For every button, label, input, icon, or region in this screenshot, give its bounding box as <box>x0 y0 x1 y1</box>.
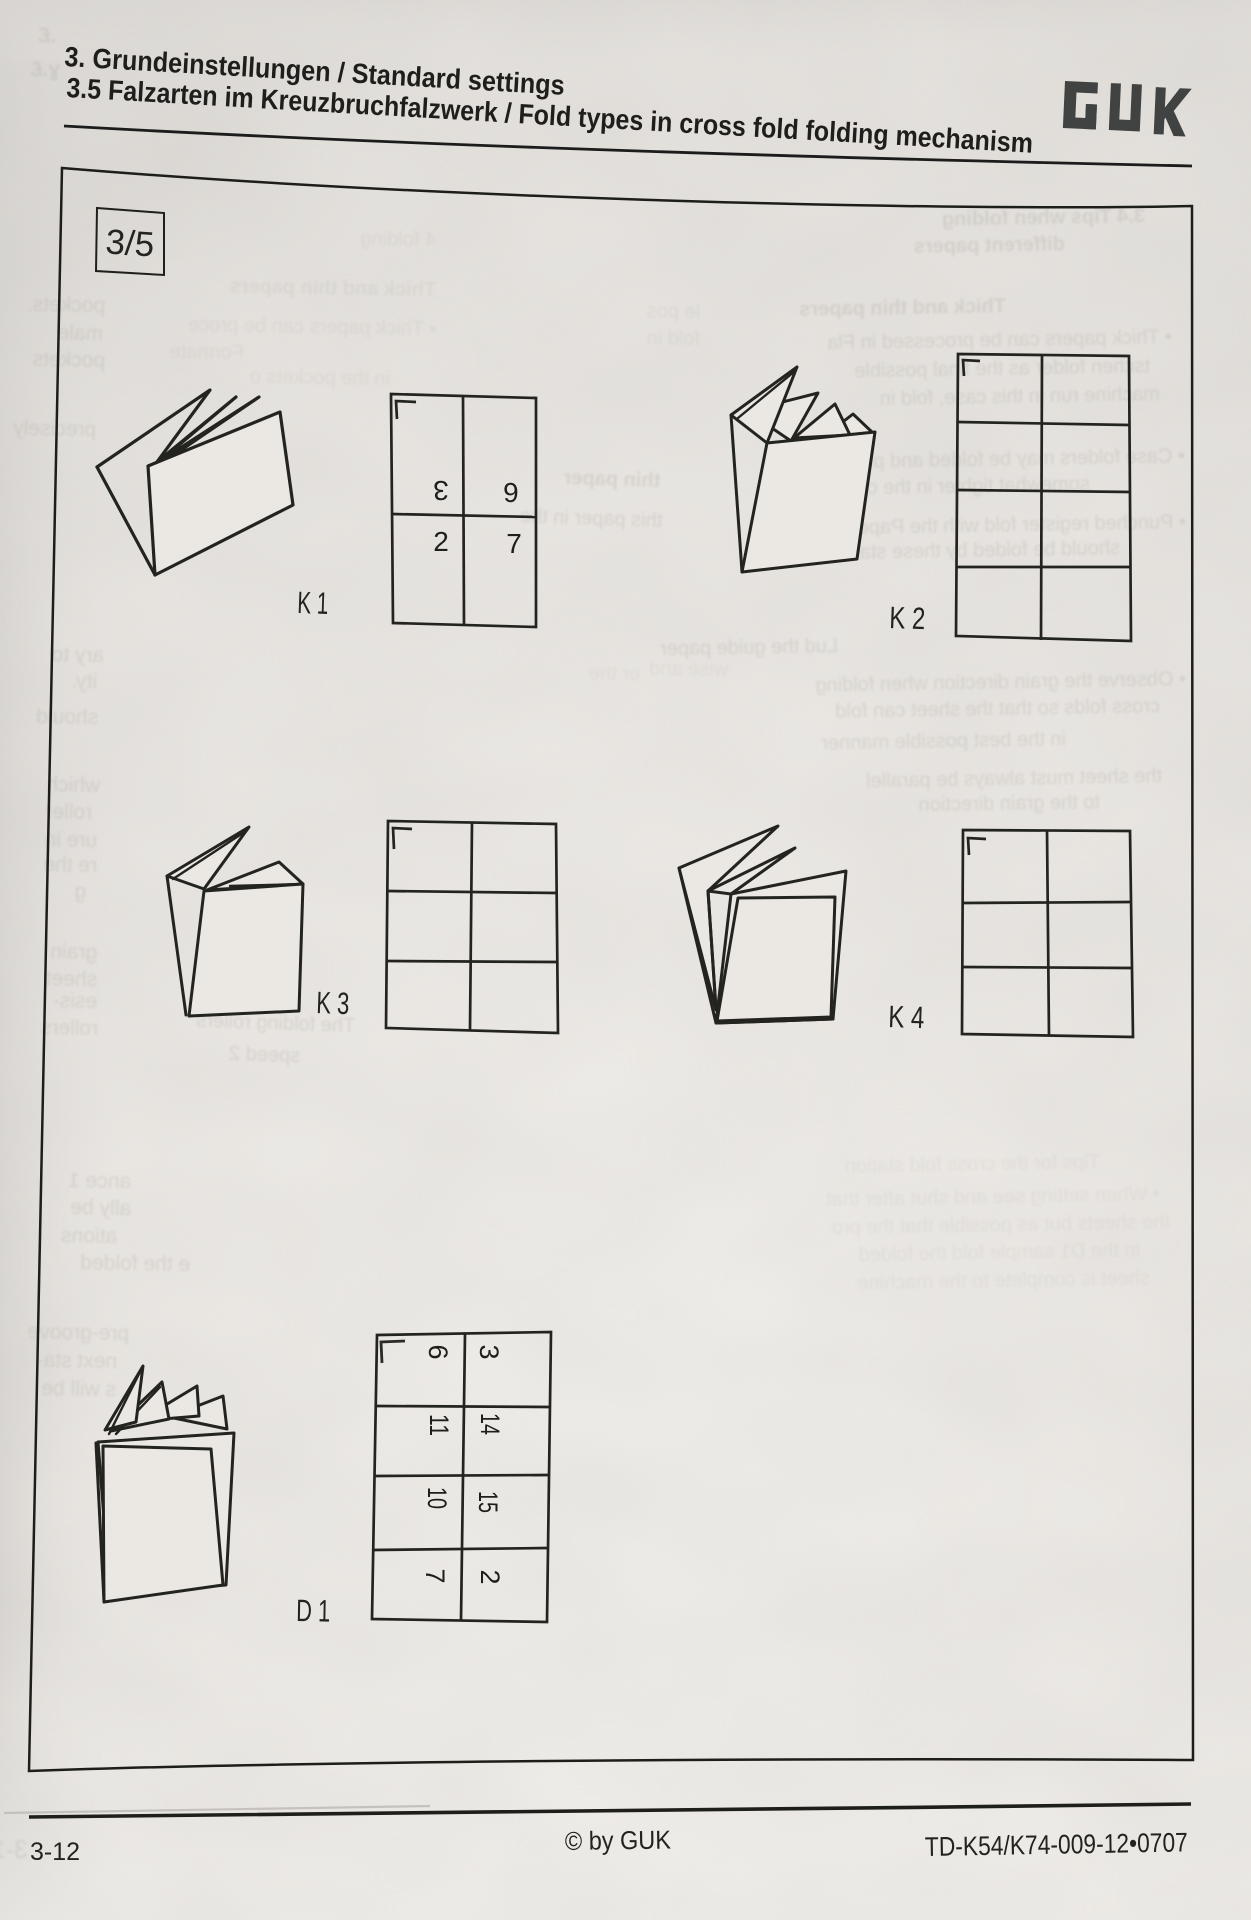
svg-text:pockets.: pockets. <box>27 293 106 317</box>
svg-text:6: 6 <box>423 1344 453 1359</box>
svg-text:g: g <box>74 880 86 903</box>
svg-text:D 1: D 1 <box>296 1593 331 1629</box>
svg-text:ally be: ally be <box>70 1196 131 1220</box>
svg-text:10: 10 <box>422 1487 452 1509</box>
svg-text:rollers: rollers <box>41 1016 99 1040</box>
svg-text:pockets: pockets <box>33 348 106 372</box>
svg-text:3.4 Tips when folding: 3.4 Tips when folding <box>942 205 1145 231</box>
svg-text:2: 2 <box>475 1569 505 1584</box>
svg-text:K 2: K 2 <box>889 600 926 636</box>
svg-text:7: 7 <box>506 528 522 559</box>
svg-text:© by GUK: © by GUK <box>565 1825 672 1856</box>
svg-text:11: 11 <box>424 1414 454 1436</box>
svg-text:ure in: ure in <box>44 828 97 852</box>
svg-text:roller: roller <box>45 800 92 824</box>
svg-text:re the: re the <box>43 853 97 877</box>
svg-text:in the best possible manner: in the best possible manner <box>821 728 1066 754</box>
svg-text:sheet: sheet <box>45 967 97 991</box>
svg-text:somewhat tighter in the case: somewhat tighter in the case <box>835 473 1090 499</box>
svg-text:Tips for the cross fold statio: Tips for the cross fold station <box>845 1151 1100 1177</box>
svg-text:thin paper: thin paper <box>563 467 661 492</box>
svg-text:K 1: K 1 <box>297 585 329 621</box>
svg-text:K 4: K 4 <box>888 999 925 1035</box>
svg-text:to the grain direction: to the grain direction <box>918 791 1100 816</box>
svg-text:ance 1: ance 1 <box>68 1169 131 1193</box>
svg-text:Thick and thin papers: Thick and thin papers <box>799 295 1006 321</box>
svg-text:ɣ.£: ɣ.£ <box>30 58 60 81</box>
svg-text:ary to: ary to <box>51 643 104 667</box>
svg-text:wise and: wise and <box>649 658 729 681</box>
svg-text:er the: er the <box>589 662 641 685</box>
svg-text:s will be: s will be <box>41 1377 116 1401</box>
svg-text:e the folded: e the folded <box>80 1251 190 1276</box>
svg-text:3/5: 3/5 <box>104 222 155 264</box>
svg-text:should: should <box>36 705 98 729</box>
svg-text:TD-K54/K74-009-12•0707: TD-K54/K74-009-12•0707 <box>925 1827 1188 1862</box>
svg-text:15: 15 <box>473 1491 503 1513</box>
svg-text:fold in: fold in <box>647 327 701 350</box>
svg-text:• Thick papers can be proce: • Thick papers can be proce <box>188 314 436 340</box>
svg-text:3-12: 3-12 <box>30 1838 80 1866</box>
svg-text:3-11: 3-11 <box>0 1836 28 1864</box>
svg-text:2: 2 <box>433 526 449 557</box>
svg-text:4 folding: 4 folding <box>360 228 436 251</box>
svg-text:next sta-: next sta- <box>36 1349 117 1373</box>
svg-text:3: 3 <box>474 1344 504 1359</box>
svg-text:precisely: precisely <box>13 417 97 441</box>
svg-text:male: male <box>57 321 103 345</box>
svg-text:.£: .£ <box>38 24 56 47</box>
svg-text:6: 6 <box>503 477 519 508</box>
svg-text:which: which <box>46 773 101 797</box>
svg-text:K 3: K 3 <box>316 985 350 1021</box>
svg-text:14: 14 <box>475 1413 505 1435</box>
svg-text:7: 7 <box>420 1568 450 1583</box>
svg-text:3: 3 <box>433 475 449 506</box>
svg-text:different papers: different papers <box>914 233 1066 258</box>
svg-text:ity.: ity. <box>72 670 98 693</box>
svg-text:Formate: Formate <box>169 341 244 364</box>
svg-text:in the pockets o: in the pockets o <box>250 366 390 390</box>
svg-text:ations: ations <box>61 1224 117 1248</box>
svg-text:speed 2: speed 2 <box>229 1043 301 1067</box>
svg-text:Lud the guide paper: Lud the guide paper <box>659 635 838 660</box>
svg-text:le pos: le pos <box>647 300 701 323</box>
svg-text:esis-: esis- <box>53 989 98 1013</box>
svg-text:pre-groove: pre-groove <box>27 1320 129 1345</box>
svg-text:Thick and thin papers: Thick and thin papers <box>229 275 436 301</box>
svg-text:grain: grain <box>50 940 97 964</box>
